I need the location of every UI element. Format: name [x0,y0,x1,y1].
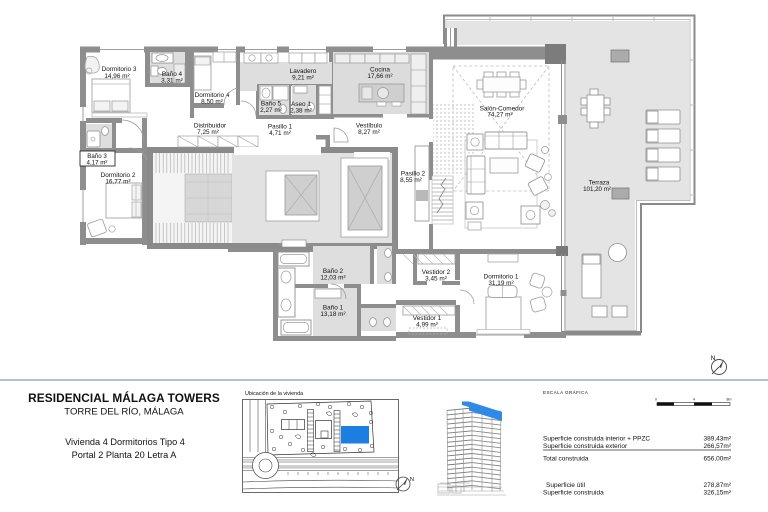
svg-text:Superficie construida: Superficie construida [543,490,604,497]
svg-text:8,55 m²: 8,55 m² [400,177,422,184]
svg-text:Superficie construida interior: Superficie construida interior + PPZC [543,436,650,443]
svg-text:16,77 m²: 16,77 m² [105,179,130,186]
svg-text:74,27 m²: 74,27 m² [487,112,512,119]
svg-text:RESIDENCIAL MÁLAGA TOWERS: RESIDENCIAL MÁLAGA TOWERS [28,391,220,405]
svg-text:389,43m²: 389,43m² [704,436,732,443]
svg-text:13,18 m²: 13,18 m² [320,311,345,318]
svg-text:7,25 m²: 7,25 m² [197,129,219,136]
svg-text:4,71 m²: 4,71 m² [269,130,291,137]
svg-text:8,27 m²: 8,27 m² [358,129,380,136]
svg-text:ESCALA GRÁFICA: ESCALA GRÁFICA [543,389,589,395]
svg-text:8m: 8m [727,398,732,402]
svg-text:12,03 m²: 12,03 m² [320,275,345,282]
svg-text:Portal 2 Planta 20 Letra A: Portal 2 Planta 20 Letra A [72,450,178,460]
svg-text:278,87m²: 278,87m² [704,482,732,489]
svg-text:266,57m²: 266,57m² [704,443,732,450]
svg-text:Dormitorio 3: Dormitorio 3 [102,66,137,73]
svg-text:3,31 m²: 3,31 m² [161,78,183,85]
svg-text:2,27 m²: 2,27 m² [260,107,282,114]
svg-text:Ubicación de la vivienda: Ubicación de la vivienda [245,391,303,397]
svg-text:4,17 m²: 4,17 m² [87,160,108,167]
svg-text:101,20 m²: 101,20 m² [583,186,611,193]
svg-text:656,00m²: 656,00m² [704,456,732,463]
svg-text:3,45 m²: 3,45 m² [425,276,447,283]
svg-text:N: N [410,477,414,483]
svg-text:4,99 m²: 4,99 m² [416,322,438,329]
svg-text:Total construida: Total construida [543,456,589,463]
svg-text:326,15m²: 326,15m² [704,490,732,497]
svg-text:31,19 m²: 31,19 m² [488,280,513,287]
svg-text:8,50 m²: 8,50 m² [201,99,223,106]
svg-text:Superficie útil: Superficie útil [546,482,586,489]
svg-text:14,96 m²: 14,96 m² [104,73,129,80]
svg-text:TORRE DEL RÍO, MÁLAGA: TORRE DEL RÍO, MÁLAGA [64,407,184,418]
svg-text:Vivienda 4 Dormitorios Tipo 4: Vivienda 4 Dormitorios Tipo 4 [65,437,185,447]
svg-text:Superficie construida exterior: Superficie construida exterior [543,443,628,450]
svg-text:9,21 m²: 9,21 m² [292,75,314,82]
svg-text:0: 0 [655,398,657,402]
svg-text:17,66 m²: 17,66 m² [367,73,392,80]
svg-text:2,38 m²: 2,38 m² [290,108,312,115]
svg-text:4: 4 [693,398,695,402]
